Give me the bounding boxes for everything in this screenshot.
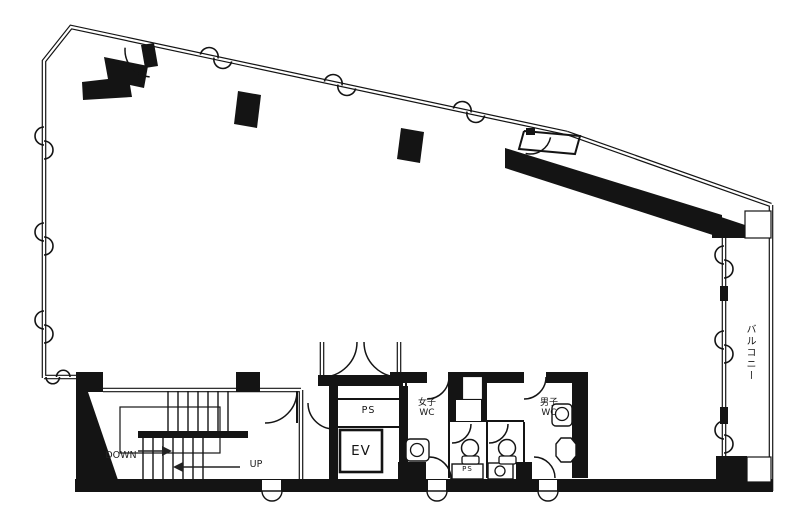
fixture-box [120,407,220,453]
fixture-box [747,457,771,482]
wall-solid [234,91,261,128]
door-swing-arc [322,342,357,377]
womens-wc-label-line2: WC [406,409,448,419]
toilet-tank-icon [499,456,516,464]
wall-solid [76,372,103,392]
wall-solid [76,392,118,480]
plumbing-fixture-icon [462,440,479,457]
womens-wc-label: 女子 WC [406,399,448,418]
wall-solid [720,286,728,301]
pipe-space-lower-label: PS [452,466,483,474]
stairs-up-label: UP [241,460,271,470]
wall-solid [398,462,426,481]
fixture-box [456,400,481,421]
fixture-box [539,480,557,491]
stair-direction-arrowhead [162,446,172,456]
plumbing-fixture-icon [499,440,516,457]
stairs-down-label: DOWN [99,451,143,461]
wall-solid [75,479,773,492]
plumbing-fixture-icon [411,444,424,457]
door-swing-arc [534,457,555,478]
wall-solid [712,214,745,238]
wall-solid [397,128,424,163]
wall-solid [572,372,588,478]
floor-plan: PS EV 女子 WC 男子 WC PS DOWN UP バルコニー [0,0,787,518]
door-swing-arc [524,377,546,399]
exterior-door-icon [262,491,282,501]
fixture-box [262,480,281,491]
wall-solid [82,57,148,100]
plumbing-fixture-icon [495,466,505,476]
exterior-door-icon [538,491,558,501]
door-swing-arc [429,457,451,479]
fixture-box [428,480,446,491]
fixture-box [462,376,483,400]
pipe-space-upper-label: PS [338,406,399,416]
wall-solid [505,148,722,238]
floor-plan-drawing [0,0,787,518]
mens-wc-label-line2: WC [527,409,571,419]
wall-solid [138,431,248,438]
wall-solid [526,128,535,135]
door-swing-arc [265,391,297,423]
door-swing-arc [427,377,449,399]
wall-solid [236,372,260,392]
fixture-box [745,211,771,238]
exterior-door-icon [427,491,447,501]
door-swing-arc [364,342,399,377]
balcony-label: バルコニー [740,312,758,394]
stair-direction-arrowhead [173,462,183,472]
wall-solid [329,386,338,481]
wall-solid [716,456,747,484]
urinal-icon [556,438,576,462]
wall-solid [516,462,532,481]
mens-wc-label: 男子 WC [527,399,571,418]
elevator-label: EV [340,444,382,459]
toilet-tank-icon [462,456,479,464]
wall-solid [483,372,524,383]
